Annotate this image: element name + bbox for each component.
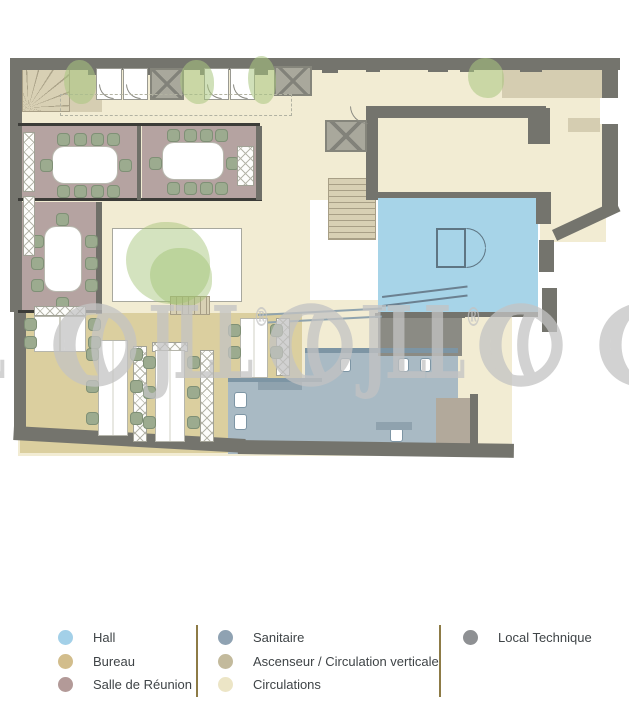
legend-label-hall: Hall [93, 630, 115, 645]
legend-item-hall: Hall [58, 630, 192, 645]
legend-item-local-technique: Local Technique [463, 630, 592, 645]
legend-dot-sanitaire [218, 630, 233, 645]
legend-label-ascenseur: Ascenseur / Circulation verticale [253, 654, 439, 669]
legend-label-bureau: Bureau [93, 654, 135, 669]
legend-label-circulations: Circulations [253, 677, 321, 692]
legend-label-salle-de-reunion: Salle de Réunion [93, 677, 192, 692]
legend-label-sanitaire: Sanitaire [253, 630, 304, 645]
legend-dot-hall [58, 630, 73, 645]
legend-dot-circulations [218, 677, 233, 692]
legend-dot-ascenseur [218, 654, 233, 669]
legend-item-ascenseur: Ascenseur / Circulation verticale [218, 654, 439, 669]
legend-divider-2 [439, 625, 441, 697]
legend: Hall Bureau Salle de Réunion Sanitaire A… [0, 0, 629, 727]
floorplan-page: JLL JLL® JLL® Hall Bureau Salle de Réuni… [0, 0, 629, 727]
legend-column-1: Hall Bureau Salle de Réunion [58, 630, 192, 701]
legend-item-circulations: Circulations [218, 677, 439, 692]
legend-column-3: Local Technique [463, 630, 592, 654]
legend-label-local-technique: Local Technique [498, 630, 592, 645]
legend-dot-bureau [58, 654, 73, 669]
legend-dot-local-technique [463, 630, 478, 645]
legend-column-2: Sanitaire Ascenseur / Circulation vertic… [218, 630, 439, 701]
legend-item-bureau: Bureau [58, 654, 192, 669]
legend-item-sanitaire: Sanitaire [218, 630, 439, 645]
legend-divider-1 [196, 625, 198, 697]
legend-item-salle-de-reunion: Salle de Réunion [58, 677, 192, 692]
legend-dot-salle-de-reunion [58, 677, 73, 692]
